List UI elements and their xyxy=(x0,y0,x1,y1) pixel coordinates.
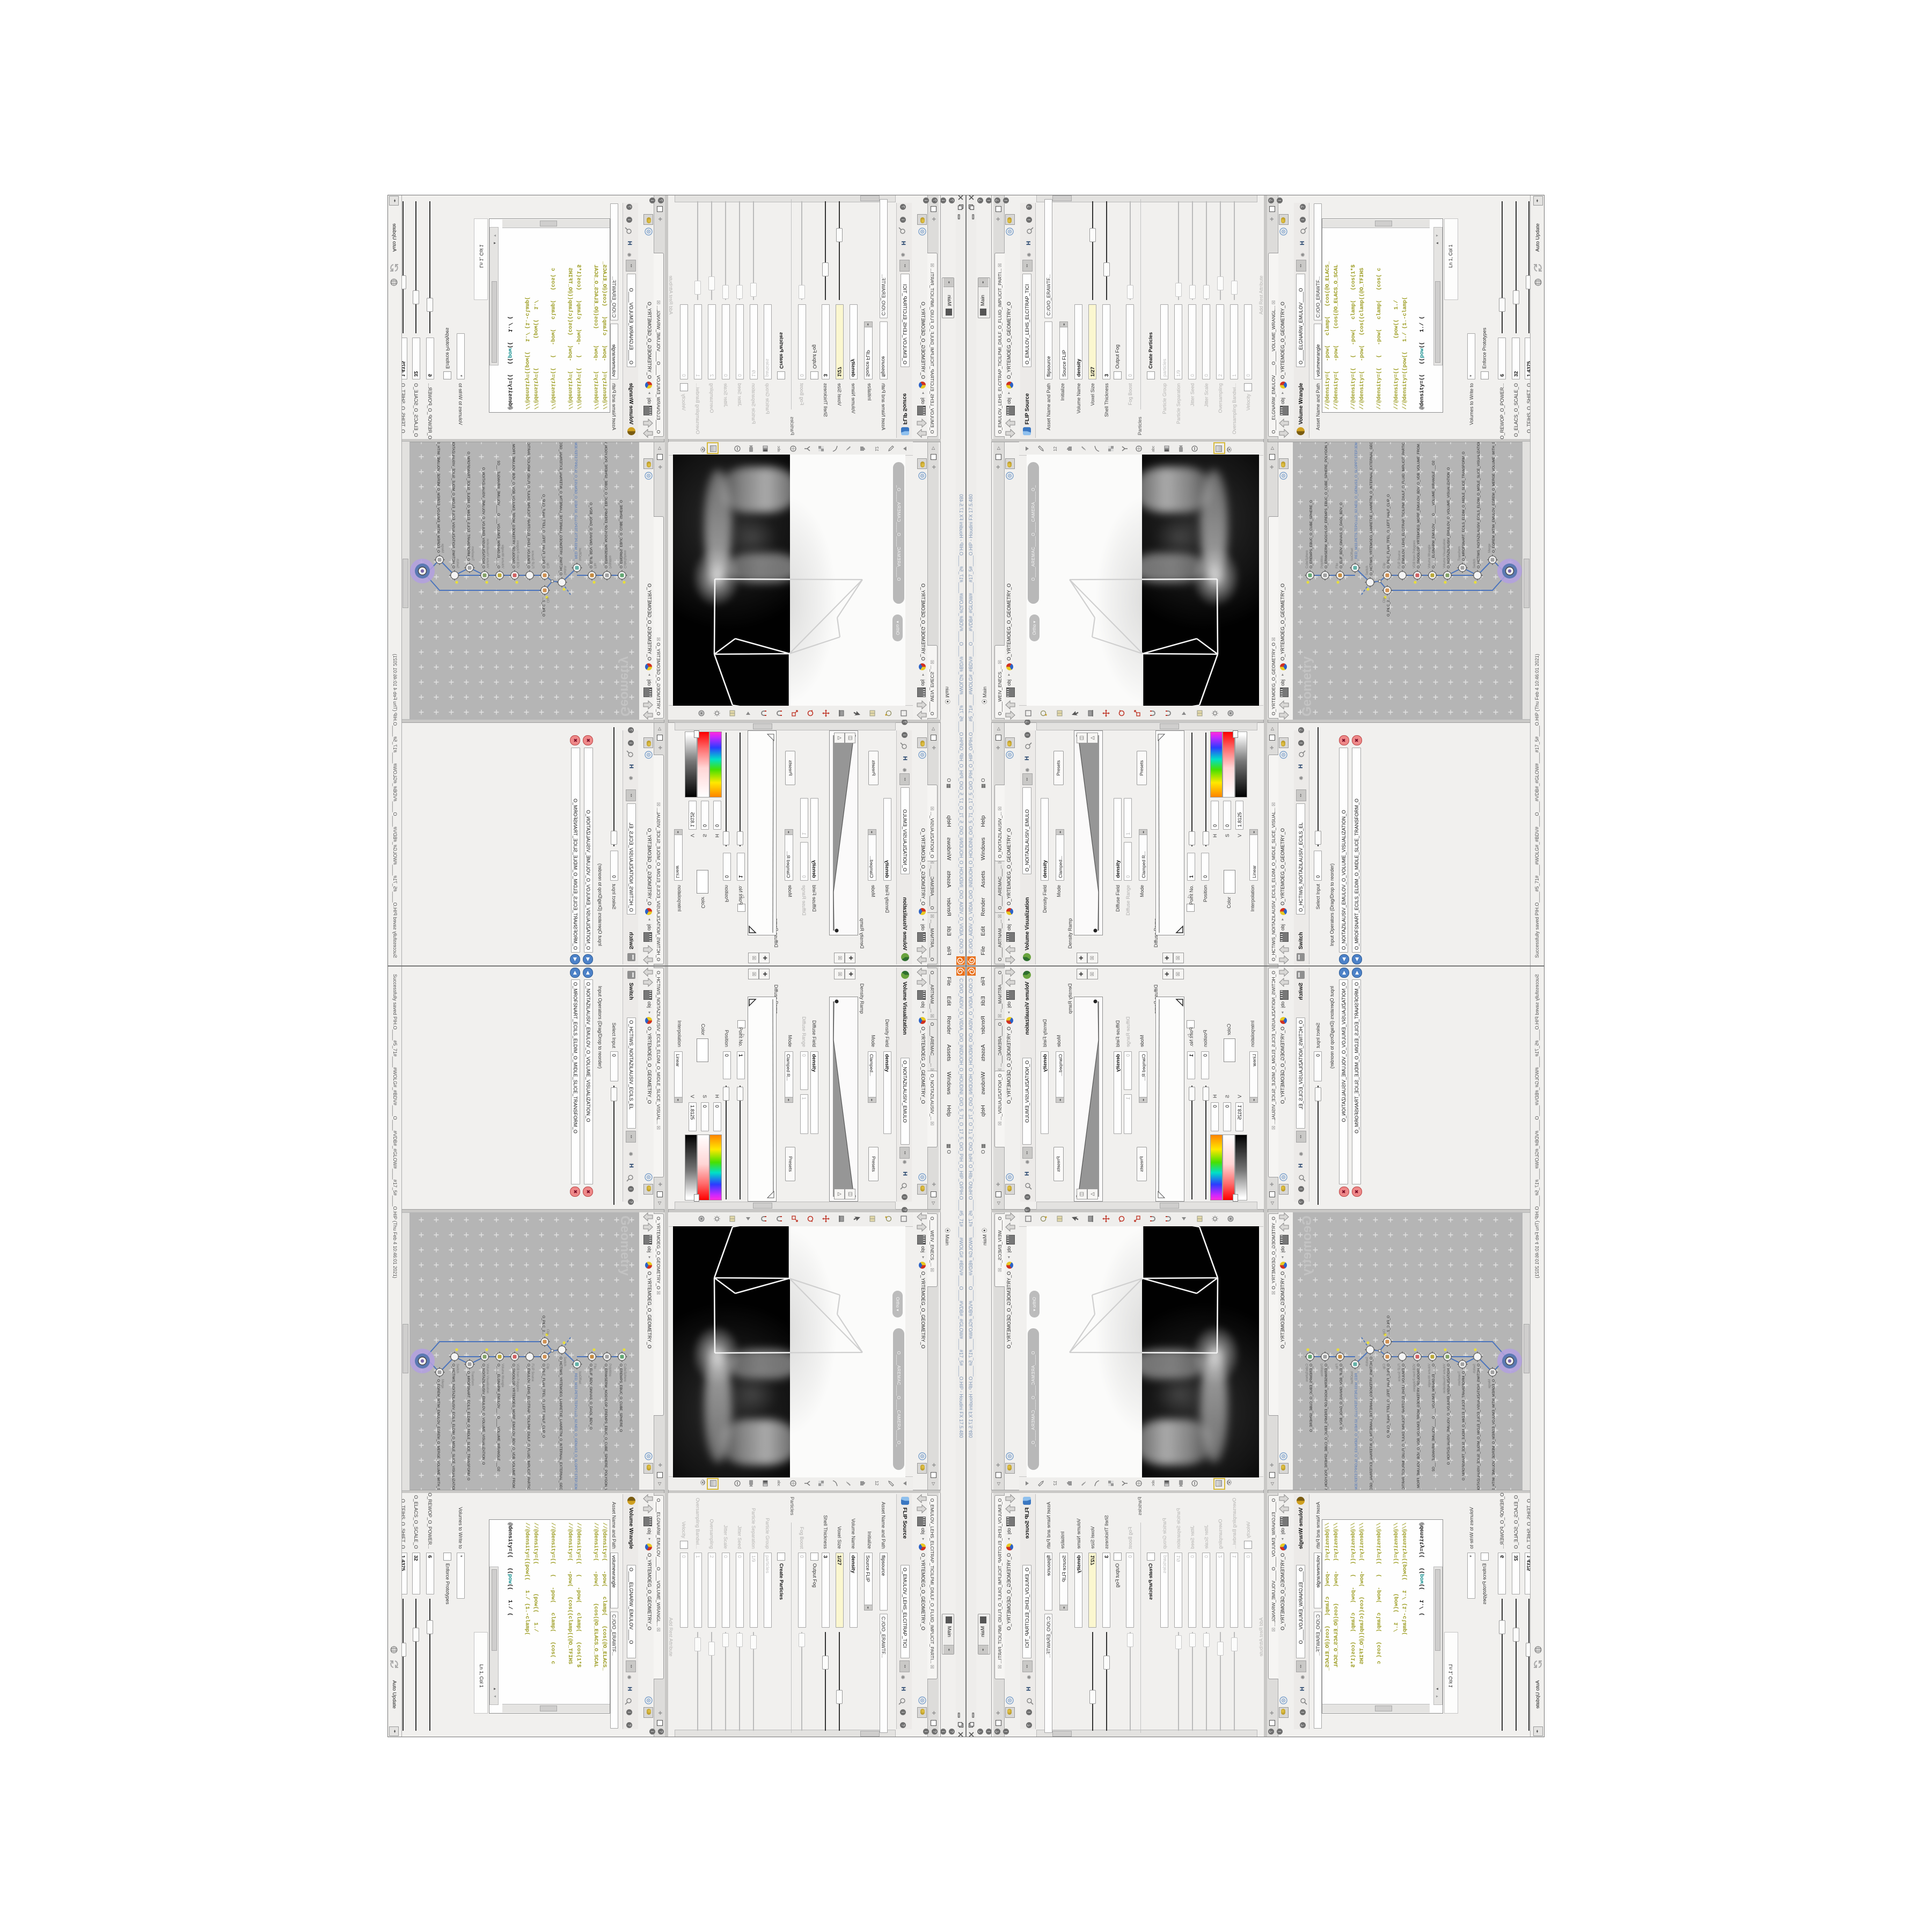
svg-text:O_SNOGLOP_YRTEMOEG_MORF_EMULOV: O_SNOGLOP_YRTEMOEG_MORF_EMULOV_BDV_O_VDB… xyxy=(1417,1364,1421,1490)
svg-text:abc: abc xyxy=(777,1480,780,1487)
svg-text:Volume Wrangle: Volume Wrangle xyxy=(1428,544,1431,568)
svg-text:O_HCTIWS_NOITAZILAUSIV_ECILS_E: O_HCTIWS_NOITAZILAUSIV_ECILS_ELDIM_O_MID… xyxy=(1477,1364,1481,1490)
svg-text:O_HCTIWS_YRTEMOEG_LANRETXE_LAN: O_HCTIWS_YRTEMOEG_LANRETXE_LANRETNI_O_IN… xyxy=(559,1357,562,1490)
svg-text:O_ERIWSERW_NOGYLOP_EREMPS_EBUC: O_ERIWSERW_NOGYLOP_EREMPS_EBUC_O_CUBE_SP… xyxy=(1324,442,1328,568)
svg-text:Switch: Switch xyxy=(456,1364,459,1373)
svg-text:File: File xyxy=(593,1364,596,1369)
svg-text:VDB from Polygons: VDB from Polygons xyxy=(516,1364,519,1392)
svg-text:O_EREMPS_EBUC_O_CUBE_SPHERE_O: O_EREMPS_EBUC_O_CUBE_SPHERE_O xyxy=(1309,1364,1313,1432)
svg-text:O_ERIWSERW_NOGYLOP_EREMPS_EBUC: O_ERIWSERW_NOGYLOP_EREMPS_EBUC_O_CUBE_SP… xyxy=(604,442,608,568)
svg-text:O_EMULOV_LEHS_ELCITRAP_TICILPM: O_EMULOV_LEHS_ELCITRAP_TICILPMI_DIULF_O_… xyxy=(526,442,530,568)
svg-text:O_EREMPS_EBUC_O_CUBE_SPHERE_O: O_EREMPS_EBUC_O_CUBE_SPHERE_O xyxy=(619,1364,623,1432)
svg-text:CubeSphere: CubeSphere xyxy=(623,550,626,568)
svg-text:12: 12 xyxy=(1053,1481,1058,1485)
svg-text:Switch: Switch xyxy=(563,1357,566,1366)
svg-text:CubeSphere: CubeSphere xyxy=(623,1364,626,1382)
svg-text:O_EREMPS_EBUC_O_CUBE_SPHERE_O: O_EREMPS_EBUC_O_CUBE_SPHERE_O xyxy=(1309,500,1313,568)
svg-text:VDB from Polygons: VDB from Polygons xyxy=(1413,1364,1416,1392)
svg-text:PolyWire: PolyWire xyxy=(608,1364,611,1377)
svg-text:_RED_M33.PETS.TEPO.LLD_92.NEG_: _RED_M33.PETS.TEPO.LLD_92.NEG_O_GENUS3_O… xyxy=(574,1371,577,1490)
svg-text:Volume Visualization: Volume Visualization xyxy=(1443,1364,1446,1393)
svg-text:O____ELGNARW_EMULOV____O____VO: O____ELGNARW_EMULOV____O____VOLUME_WRANG… xyxy=(1432,1364,1436,1472)
svg-text:O_PILC_2...: O_PILC_2... xyxy=(1387,1315,1391,1335)
svg-text:O_HCTIWS_YRTEMOEG_LANRETXE_LAN: O_HCTIWS_YRTEMOEG_LANRETXE_LANRETNI_O_IN… xyxy=(1370,442,1373,575)
svg-text:Volume Visualization: Volume Visualization xyxy=(486,539,489,568)
svg-text:Volume Wrangle: Volume Wrangle xyxy=(501,544,504,568)
svg-text:O_SNOGLOP_YRTEMOEG_MORF_EMULOV: O_SNOGLOP_YRTEMOEG_MORF_EMULOV_BDV_O_VDB… xyxy=(511,1364,515,1490)
svg-text:CubeSphere: CubeSphere xyxy=(1306,550,1309,568)
svg-text:O_MROFSNART_ECILS_ELDIM_O_MIDL: O_MROFSNART_ECILS_ELDIM_O_MIDLE_SLICE_TR… xyxy=(466,451,470,561)
svg-text:Switch: Switch xyxy=(1473,1364,1476,1373)
svg-text:Transform: Transform xyxy=(1458,546,1461,561)
svg-text:O_MROFSNART_ECILS_ELDIM_O_MIDL: O_MROFSNART_ECILS_ELDIM_O_MIDLE_SLICE_TR… xyxy=(1462,1371,1466,1481)
svg-text:Clip: Clip xyxy=(546,562,549,568)
svg-text:Volume Visualization: Volume Visualization xyxy=(486,1364,489,1393)
svg-text:Transform: Transform xyxy=(471,546,474,561)
svg-text:O_EGREM_MTIW_EMULOV_EGREM_O_ME: O_EGREM_MTIW_EMULOV_EGREM_O_MERGE_VOLUME… xyxy=(436,1379,440,1490)
svg-text:O_ERIWSERW_NOGYLOP_EREMPS_EBUC: O_ERIWSERW_NOGYLOP_EREMPS_EBUC_O_CUBE_SP… xyxy=(1324,1364,1328,1490)
svg-text:O_ELIF_BDV_GNIVAS_O_DAOL_BDV_O: O_ELIF_BDV_GNIVAS_O_DAOL_BDV_O xyxy=(589,1364,592,1430)
svg-text:O_SNOGLOP_YRTEMOEG_MORF_EMULOV: O_SNOGLOP_YRTEMOEG_MORF_EMULOV_BDV_O_VDB… xyxy=(511,442,515,568)
svg-text:O_MROFSNART_ECILS_ELDIM_O_MIDL: O_MROFSNART_ECILS_ELDIM_O_MIDLE_SLICE_TR… xyxy=(1462,451,1466,561)
svg-text:O_PILC_FLAH_TFEL_O_LEFT_HALF_C: O_PILC_FLAH_TFEL_O_LEFT_HALF_CLIP_O xyxy=(541,1364,545,1438)
svg-text:Clip: Clip xyxy=(1383,1364,1386,1370)
svg-text:Merge: Merge xyxy=(441,543,444,553)
svg-text:Clip: Clip xyxy=(546,597,549,603)
svg-text:Switch: Switch xyxy=(1366,1357,1369,1366)
svg-text:VDB from Polygons: VDB from Polygons xyxy=(1413,540,1416,568)
svg-text:File: File xyxy=(1336,563,1339,568)
svg-text:O____ELGNARW_EMULOV____O____VO: O____ELGNARW_EMULOV____O____VOLUME_WRANG… xyxy=(496,1364,500,1472)
svg-text:Transform: Transform xyxy=(1458,1371,1461,1386)
svg-text:Volume Wrangle: Volume Wrangle xyxy=(501,1364,504,1388)
svg-text:O_PILC_FLAH_TFEL_O_LEFT_HALF_C: O_PILC_FLAH_TFEL_O_LEFT_HALF_CLIP_O xyxy=(1387,494,1391,568)
svg-text:Clip: Clip xyxy=(1383,1329,1386,1335)
svg-text:O_PILC_2...: O_PILC_2... xyxy=(541,597,545,617)
svg-text:VDB from Polygons: VDB from Polygons xyxy=(516,540,519,568)
svg-text:_RED_M33.PETS.TEPO.LLD_92.NEG_: _RED_M33.PETS.TEPO.LLD_92.NEG_O_GENUS3_O… xyxy=(1355,1371,1358,1490)
svg-text:O____ELGNARW_EMULOV____O____VO: O____ELGNARW_EMULOV____O____VOLUME_WRANG… xyxy=(496,460,500,568)
svg-text:CubeSphere: CubeSphere xyxy=(1306,1364,1309,1382)
svg-text:O_EMULOV_LEHS_ELCITRAP_TICILPM: O_EMULOV_LEHS_ELCITRAP_TICILPMI_DIULF_O_… xyxy=(1402,1364,1406,1490)
svg-text:12: 12 xyxy=(874,1481,879,1485)
svg-text:Transform: Transform xyxy=(471,1371,474,1386)
svg-text:FLIP Source: FLIP Source xyxy=(531,1364,534,1382)
svg-text:O_NOITAZILAUSIV_EMULOV_O_VOLUM: O_NOITAZILAUSIV_EMULOV_O_VOLUME_VISUALIZ… xyxy=(1447,1364,1451,1465)
svg-text:O_NOITAZILAUSIV_EMULOV_O_VOLUM: O_NOITAZILAUSIV_EMULOV_O_VOLUME_VISUALIZ… xyxy=(481,467,485,568)
svg-text:12: 12 xyxy=(1053,447,1058,451)
svg-text:O_NOITAZILAUSIV_EMULOV_O_VOLUM: O_NOITAZILAUSIV_EMULOV_O_VOLUME_VISUALIZ… xyxy=(481,1364,485,1465)
svg-text:O_HCTIWS_YRTEMOEG_LANRETXE_LAN: O_HCTIWS_YRTEMOEG_LANRETXE_LANRETNI_O_IN… xyxy=(1370,1357,1373,1490)
svg-text:O_EMULOV_LEHS_ELCITRAP_TICILPM: O_EMULOV_LEHS_ELCITRAP_TICILPMI_DIULF_O_… xyxy=(1402,442,1406,568)
svg-text:Clip: Clip xyxy=(546,1364,549,1370)
svg-text:O_HCTIWS_NOITAZILAUSIV_ECILS_E: O_HCTIWS_NOITAZILAUSIV_ECILS_ELDIM_O_MID… xyxy=(451,442,455,568)
svg-text:O____ELGNARW_EMULOV____O____VO: O____ELGNARW_EMULOV____O____VOLUME_WRANG… xyxy=(1432,460,1436,568)
svg-text:PolyWire: PolyWire xyxy=(1321,555,1324,568)
svg-text:FLIP Source: FLIP Source xyxy=(1398,550,1401,568)
svg-text:IsoOffset: IsoOffset xyxy=(1351,1371,1354,1384)
svg-text:_RED_M33.PETS.TEPO.LLD_92.NEG_: _RED_M33.PETS.TEPO.LLD_92.NEG_O_GENUS3_O… xyxy=(1355,442,1358,561)
svg-text:O_EGREM_MTIW_EMULOV_EGREM_O_ME: O_EGREM_MTIW_EMULOV_EGREM_O_MERGE_VOLUME… xyxy=(1492,442,1496,553)
svg-text:O_EMULOV_LEHS_ELCITRAP_TICILPM: O_EMULOV_LEHS_ELCITRAP_TICILPMI_DIULF_O_… xyxy=(526,1364,530,1490)
svg-text:abc: abc xyxy=(777,445,780,452)
svg-text:FLIP Source: FLIP Source xyxy=(1398,1364,1401,1382)
svg-text:12: 12 xyxy=(874,447,879,451)
svg-text:O_ELIF_BDV_GNIVAS_O_DAOL_BDV_O: O_ELIF_BDV_GNIVAS_O_DAOL_BDV_O xyxy=(1340,502,1343,568)
svg-text:Clip: Clip xyxy=(546,1329,549,1335)
svg-text:abc: abc xyxy=(1152,445,1155,452)
svg-text:Switch: Switch xyxy=(1366,566,1369,575)
svg-text:O_ELIF_BDV_GNIVAS_O_DAOL_BDV_O: O_ELIF_BDV_GNIVAS_O_DAOL_BDV_O xyxy=(1340,1364,1343,1430)
svg-text:PolyWire: PolyWire xyxy=(1321,1364,1324,1377)
svg-text:Merge: Merge xyxy=(1488,1379,1491,1389)
svg-text:Clip: Clip xyxy=(1383,562,1386,568)
svg-text:Clip: Clip xyxy=(1383,597,1386,603)
svg-text:IsoOffset: IsoOffset xyxy=(578,1371,581,1384)
svg-text:O_NOITAZILAUSIV_EMULOV_O_VOLUM: O_NOITAZILAUSIV_EMULOV_O_VOLUME_VISUALIZ… xyxy=(1447,467,1451,568)
svg-text:O_PILC_2...: O_PILC_2... xyxy=(1387,597,1391,617)
svg-text:Merge: Merge xyxy=(441,1379,444,1389)
svg-text:O_PILC_FLAH_TFEL_O_LEFT_HALF_C: O_PILC_FLAH_TFEL_O_LEFT_HALF_CLIP_O xyxy=(541,494,545,568)
svg-text:Volume Visualization: Volume Visualization xyxy=(1443,539,1446,568)
svg-text:Switch: Switch xyxy=(1473,559,1476,568)
svg-text:O_EGREM_MTIW_EMULOV_EGREM_O_ME: O_EGREM_MTIW_EMULOV_EGREM_O_MERGE_VOLUME… xyxy=(436,442,440,553)
svg-text:Switch: Switch xyxy=(563,566,566,575)
svg-text:File: File xyxy=(593,563,596,568)
svg-text:Switch: Switch xyxy=(456,559,459,568)
svg-text:_RED_M33.PETS.TEPO.LLD_92.NEG_: _RED_M33.PETS.TEPO.LLD_92.NEG_O_GENUS3_O… xyxy=(574,442,577,561)
svg-text:Volume Wrangle: Volume Wrangle xyxy=(1428,1364,1431,1388)
svg-text:PolyWire: PolyWire xyxy=(608,555,611,568)
svg-text:O_ERIWSERW_NOGYLOP_EREMPS_EBUC: O_ERIWSERW_NOGYLOP_EREMPS_EBUC_O_CUBE_SP… xyxy=(604,1364,608,1490)
svg-text:O_EGREM_MTIW_EMULOV_EGREM_O_ME: O_EGREM_MTIW_EMULOV_EGREM_O_MERGE_VOLUME… xyxy=(1492,1379,1496,1490)
svg-text:O_SNOGLOP_YRTEMOEG_MORF_EMULOV: O_SNOGLOP_YRTEMOEG_MORF_EMULOV_BDV_O_VDB… xyxy=(1417,442,1421,568)
svg-text:O_MROFSNART_ECILS_ELDIM_O_MIDL: O_MROFSNART_ECILS_ELDIM_O_MIDLE_SLICE_TR… xyxy=(466,1371,470,1481)
svg-text:O_HCTIWS_NOITAZILAUSIV_ECILS_E: O_HCTIWS_NOITAZILAUSIV_ECILS_ELDIM_O_MID… xyxy=(451,1364,455,1490)
svg-text:O_PILC_2...: O_PILC_2... xyxy=(541,1315,545,1335)
svg-text:File: File xyxy=(1336,1364,1339,1369)
svg-text:Merge: Merge xyxy=(1488,543,1491,553)
svg-text:O_HCTIWS_YRTEMOEG_LANRETXE_LAN: O_HCTIWS_YRTEMOEG_LANRETXE_LANRETNI_O_IN… xyxy=(559,442,562,575)
svg-text:O_PILC_FLAH_TFEL_O_LEFT_HALF_C: O_PILC_FLAH_TFEL_O_LEFT_HALF_CLIP_O xyxy=(1387,1364,1391,1438)
svg-text:IsoOffset: IsoOffset xyxy=(578,548,581,561)
svg-text:FLIP Source: FLIP Source xyxy=(531,550,534,568)
svg-text:O_HCTIWS_NOITAZILAUSIV_ECILS_E: O_HCTIWS_NOITAZILAUSIV_ECILS_ELDIM_O_MID… xyxy=(1477,442,1481,568)
svg-text:O_EREMPS_EBUC_O_CUBE_SPHERE_O: O_EREMPS_EBUC_O_CUBE_SPHERE_O xyxy=(619,500,623,568)
svg-text:IsoOffset: IsoOffset xyxy=(1351,548,1354,561)
svg-text:abc: abc xyxy=(1152,1480,1155,1487)
svg-text:O_ELIF_BDV_GNIVAS_O_DAOL_BDV_O: O_ELIF_BDV_GNIVAS_O_DAOL_BDV_O xyxy=(589,502,592,568)
